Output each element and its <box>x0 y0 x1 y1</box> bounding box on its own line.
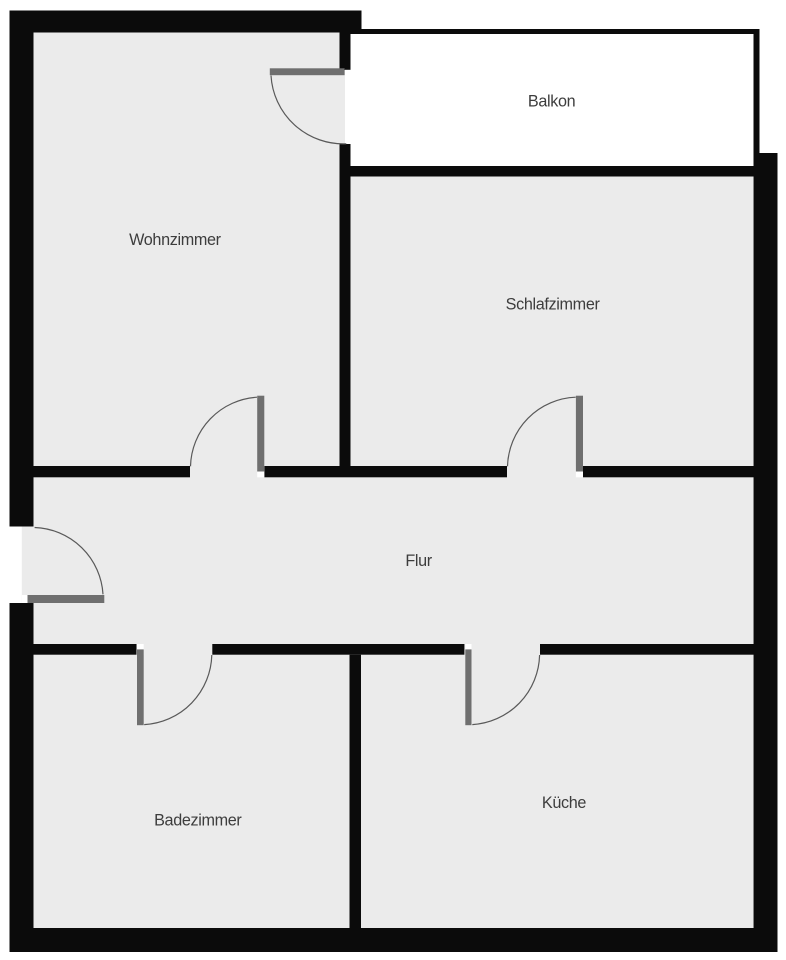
svg-text:Balkon: Balkon <box>528 92 575 110</box>
svg-text:Schlafzimmer: Schlafzimmer <box>506 295 601 313</box>
svg-text:Wohnzimmer: Wohnzimmer <box>129 231 222 249</box>
svg-text:Flur: Flur <box>405 552 432 570</box>
svg-text:Küche: Küche <box>542 794 586 812</box>
svg-text:Badezimmer: Badezimmer <box>154 811 242 829</box>
